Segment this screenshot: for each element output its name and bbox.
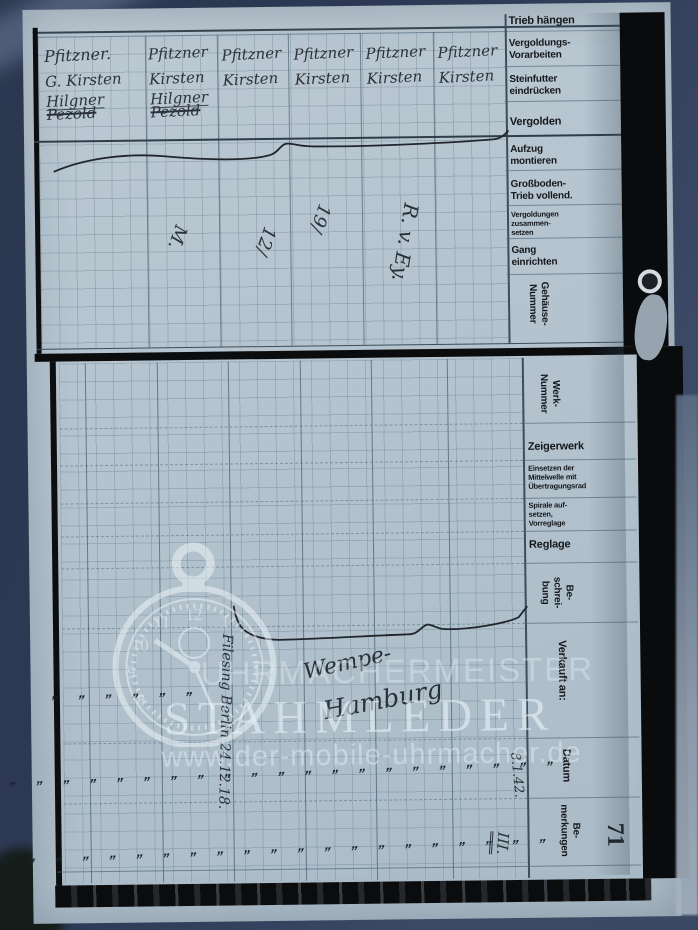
ledger-photo: Trieb hängen Vergoldungs- Vorarbeiten St… (0, 0, 698, 930)
svg-text:1: 1 (221, 612, 230, 631)
label-gang-einrichten: Gang einrichten (511, 244, 557, 268)
svg-text:12: 12 (185, 605, 202, 624)
worker-name: Kirsten (366, 69, 426, 88)
label-spirale-aufsetzen: Spirale auf- setzen, Vorreglage (528, 500, 567, 527)
svg-text:10: 10 (132, 635, 149, 654)
worker-column-1: Pfitzner. G. Kirsten Hilgner Pezold (44, 45, 124, 124)
handwritten-brace-top (52, 130, 513, 180)
worker-name-struck: Pezold (150, 103, 200, 121)
label-reglage: Reglage (529, 538, 571, 551)
worker-column-3: Pfitzner Kirsten (221, 46, 283, 89)
worker-name: Kirsten (294, 70, 354, 89)
label-aufzug: Aufzug montieren (510, 143, 557, 167)
binder-hole (638, 269, 662, 293)
worker-column-5: Pfitzner Kirsten (365, 44, 427, 87)
label-gehaeuse-nummer: Gehäuse- Nummer (526, 282, 551, 326)
label-grossboden: Großboden- Trieb vollend. (511, 178, 573, 202)
ledger-page: Trieb hängen Vergoldungs- Vorarbeiten St… (22, 2, 681, 924)
worker-name: Pfitzner (221, 46, 281, 65)
worker-name: Kirsten (438, 68, 498, 87)
worker-name: Pfitzner. (44, 45, 121, 65)
bottom-edge-band (55, 878, 651, 907)
worker-column-6: Pfitzner Kirsten (437, 43, 499, 86)
label-vergoldungen-zusammensetzen: Vergoldungen zusammen- setzen (511, 209, 559, 237)
worker-name: Kirsten (222, 71, 282, 90)
label-vergolden: Vergolden (510, 115, 562, 129)
worker-name: Pfitzner (365, 44, 425, 63)
label-trieb-haengen: Trieb hängen (509, 14, 575, 28)
worker-name: Pfitzner (148, 45, 208, 64)
label-vergoldungs-vorarbeiten: Vergoldungs- Vorarbeiten (509, 37, 571, 61)
watermark-url: www.der-mobile-uhrmacher.de (161, 737, 582, 775)
worker-name: Pfitzner (293, 45, 353, 64)
label-werk-nummer: Werk- Nummer (537, 374, 561, 414)
svg-text:9: 9 (127, 663, 136, 682)
worker-column-4: Pfitzner Kirsten (293, 45, 355, 88)
worker-column-2: Pfitzner Kirsten Hilgner Pezold (148, 45, 211, 122)
worker-name-struck: Pezold (46, 106, 96, 124)
svg-text:8: 8 (137, 691, 146, 710)
worker-name: Kirsten (149, 69, 209, 88)
worker-name: G. Kirsten (45, 71, 122, 90)
underlying-pages-edge (676, 395, 698, 915)
watermark-title: UHRMACHERMEISTER (201, 650, 595, 693)
label-bemerkungen: Be- merkungen (557, 804, 582, 856)
label-steinfutter: Steinfutter eindrücken (509, 73, 561, 97)
label-einsetzen-mittelwelle: Einsetzen der Mittelwelle mit Übertragun… (528, 463, 586, 491)
worker-name: Pfitzner (437, 43, 497, 62)
svg-text:11: 11 (154, 612, 171, 631)
label-beschreibung: Be- schrei- bung (538, 577, 574, 609)
label-zeigerwerk: Zeigerwerk (528, 440, 584, 454)
